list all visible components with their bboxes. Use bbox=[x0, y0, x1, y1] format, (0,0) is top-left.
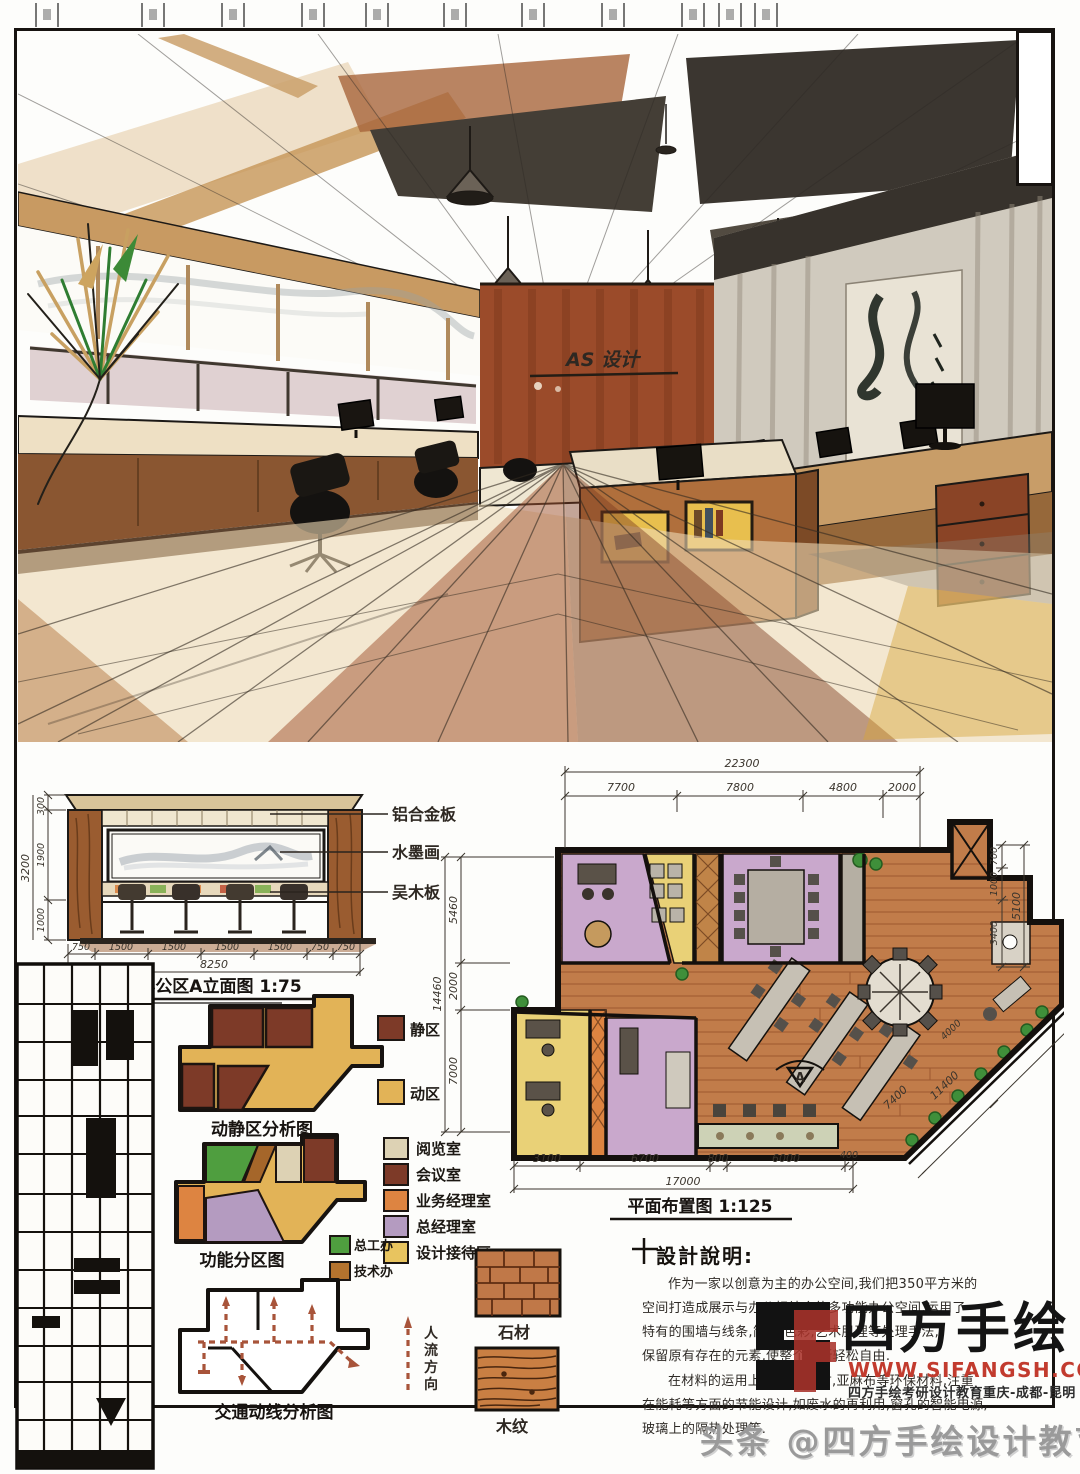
dim-text: 2000 bbox=[888, 781, 916, 794]
sifang-logo bbox=[742, 1296, 842, 1396]
wall-logo-text: AS 设计 bbox=[564, 349, 642, 371]
dim-text: 1500 bbox=[162, 942, 186, 953]
dim-text: 3200 bbox=[20, 854, 32, 882]
dim-text: 750 bbox=[311, 942, 329, 953]
circulation-diagram: 人流方向 交通动线分析图 bbox=[162, 1268, 502, 1438]
dim-text: 7000 bbox=[447, 1057, 460, 1085]
dim-text: 6700 bbox=[631, 1152, 659, 1165]
dim-text: 750 bbox=[72, 942, 90, 953]
presentation-board: AS 设计 bbox=[0, 0, 1080, 1474]
dim-text: 1500 bbox=[215, 942, 239, 953]
watermark-url: WWW.SIFANGSH.COM bbox=[848, 1358, 1080, 1382]
dim-text: 4800 bbox=[829, 781, 857, 794]
dim-text: 14460 bbox=[431, 977, 444, 1012]
legend-swatch bbox=[330, 1236, 350, 1254]
dim-text: 700 bbox=[989, 847, 1000, 865]
dim-text: 17000 bbox=[666, 1175, 701, 1188]
dim-text: 1500 bbox=[109, 942, 133, 953]
dim-text: 22300 bbox=[725, 757, 760, 770]
logo-f-shape bbox=[794, 1310, 838, 1392]
dim-text: 1500 bbox=[268, 942, 292, 953]
svg-text:A: A bbox=[795, 1071, 805, 1086]
watermark-brand: 四方手绘 bbox=[842, 1302, 1070, 1356]
dim-text: 800 bbox=[708, 1152, 729, 1165]
legend-swatch bbox=[384, 1190, 408, 1211]
dim-text: 400 bbox=[840, 1150, 858, 1161]
reference-plan-strip bbox=[14, 958, 156, 1474]
dim-text: 6000 bbox=[772, 1152, 800, 1165]
dim-text: 2000 bbox=[447, 972, 460, 1000]
floor-plan-title: 平面布置图 1:125 bbox=[627, 1196, 772, 1217]
dim-text: 7700 bbox=[607, 781, 635, 794]
elevation-geometry bbox=[66, 795, 376, 952]
dim-text: 8250 bbox=[200, 958, 228, 971]
dim-text: 3100 bbox=[533, 1152, 561, 1165]
material-label: 石材 bbox=[497, 1323, 530, 1342]
diagram-title: 交通动线分析图 bbox=[215, 1402, 334, 1423]
dim-text: 750 bbox=[337, 942, 355, 953]
title-block-strip bbox=[0, 0, 1080, 30]
dim-text: 5460 bbox=[447, 896, 460, 924]
title-block-corner-box bbox=[1016, 30, 1054, 186]
flow-direction-label: 人流方向 bbox=[424, 1325, 439, 1393]
dim-text: 300 bbox=[36, 797, 47, 815]
legend-swatch bbox=[384, 1164, 408, 1185]
legend-swatch bbox=[384, 1138, 408, 1159]
watermark-tagline: 四方手绘考研设计教育重庆-成都-昆明 bbox=[848, 1382, 1076, 1401]
notes-title-cross-icon bbox=[632, 1238, 1046, 1264]
plan-top-dims bbox=[561, 766, 924, 848]
legend-label: 总工办 bbox=[354, 1238, 393, 1254]
perspective-rendering: AS 设计 bbox=[18, 34, 1052, 742]
legend-swatch-quiet bbox=[378, 1016, 404, 1040]
material-swatches: 石材 木纹 bbox=[470, 1248, 580, 1438]
dim-text: 7800 bbox=[726, 781, 754, 794]
legend-swatch-active bbox=[378, 1080, 404, 1104]
material-label: 木纹 bbox=[495, 1417, 529, 1436]
watermark-footer: 头条 @四方手绘设计教育 bbox=[700, 1415, 1080, 1463]
legend-swatch bbox=[384, 1216, 408, 1237]
dim-text: 1900 bbox=[36, 843, 47, 867]
dim-text: 3400 bbox=[989, 921, 1000, 945]
floor-plan: A 22300 7700 7800 4800 2000 5460 2000 bbox=[430, 752, 1064, 1222]
dim-text: 1000 bbox=[989, 872, 1000, 896]
dim-text: 1000 bbox=[36, 908, 47, 932]
notes-line: 作为一家以创意为主的办公空间,我们把350平方米的 bbox=[642, 1275, 1056, 1295]
dim-text: 5100 bbox=[1010, 892, 1023, 920]
